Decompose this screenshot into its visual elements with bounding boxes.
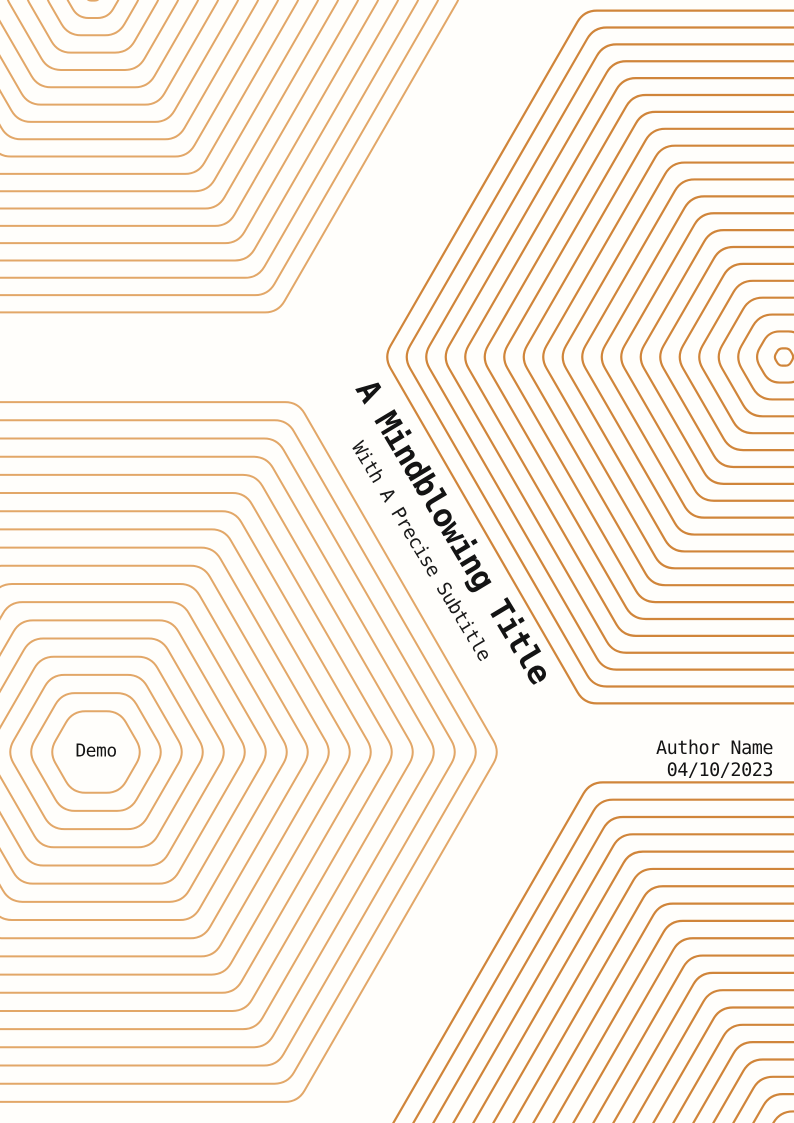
hexagon-ripple-background	[0, 0, 794, 1123]
hex-ripple-top-left	[0, 0, 460, 312]
author-block: Author Name 04/10/2023	[656, 738, 773, 782]
author-name: Author Name	[656, 738, 773, 760]
hex-ripple-bottom-right	[323, 782, 794, 1123]
document-date: 04/10/2023	[656, 760, 773, 782]
demo-badge: Demo	[75, 741, 116, 762]
document-title-page: A Mindblowing Title With A Precise Subti…	[0, 0, 794, 1123]
